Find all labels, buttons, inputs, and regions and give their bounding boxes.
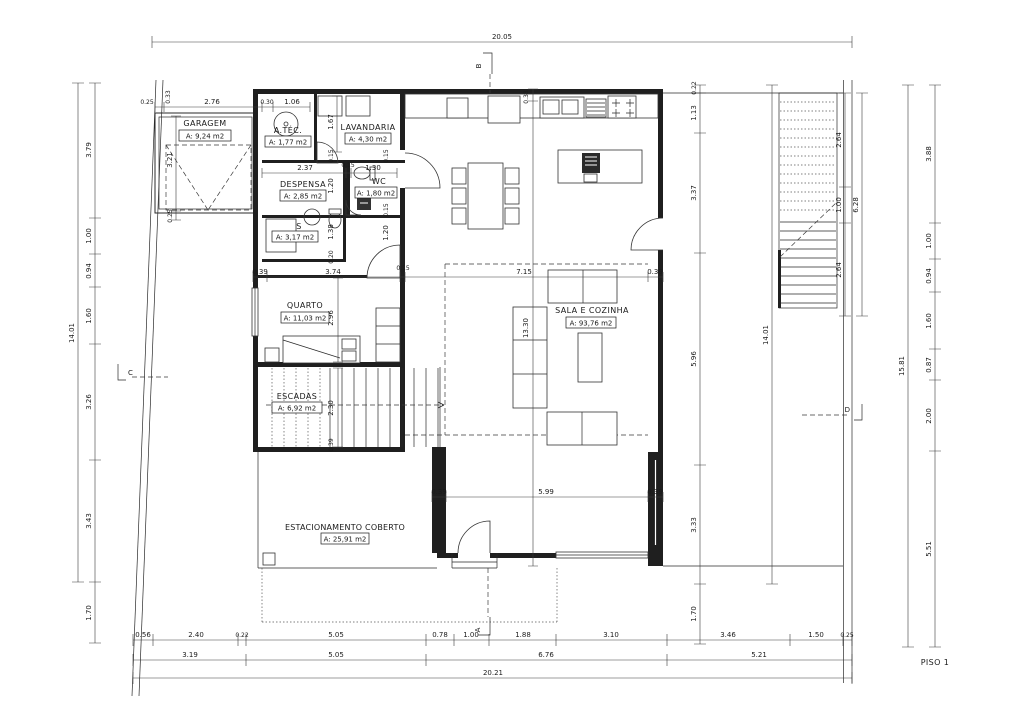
dim-b1-2: 0.22 xyxy=(235,632,249,639)
room-garagem-area: A: 9,24 m2 xyxy=(186,133,224,141)
dim-b1-1: 2.40 xyxy=(188,631,204,639)
dim-b1-0: 0.56 xyxy=(135,631,151,639)
dim-left-3: 1.60 xyxy=(85,308,93,324)
dimension-labels: 20.05 20.21 14.01 3.79 1.00 0.94 1.60 3.… xyxy=(68,33,933,677)
dim-far-3: 1.60 xyxy=(925,313,933,329)
dim-right-4: 3.33 xyxy=(690,517,698,533)
floor-plan-drawing: B A C D xyxy=(0,0,1010,720)
dim-b1-6: 1.88 xyxy=(515,631,531,639)
dim-v-039: 0.39 xyxy=(328,438,335,452)
dim-right-0: 0.22 xyxy=(691,81,698,95)
dim-v-120r: 1.20 xyxy=(382,225,390,241)
dim-mid-0: 0.39 xyxy=(252,268,268,276)
floor-plan-sheet: B A C D xyxy=(0,0,1010,720)
dim-right-3: 5.96 xyxy=(690,351,698,367)
entry-door xyxy=(452,521,497,568)
dim-garage-0: 0.25 xyxy=(140,99,154,106)
room-sala-area: A: 93,76 m2 xyxy=(570,320,613,328)
dim-right-total: 14.01 xyxy=(762,325,770,345)
dim-mid-1: 3.74 xyxy=(325,268,341,276)
dim-top-total: 20.05 xyxy=(492,33,512,41)
dim-left-1: 1.00 xyxy=(85,228,93,244)
room-wc-area: A: 1,80 m2 xyxy=(357,190,395,198)
dim-far-4: 0.87 xyxy=(925,357,933,373)
dim-b1-3: 5.05 xyxy=(328,631,344,639)
dim-b1-8: 3.46 xyxy=(720,631,736,639)
room-escadas-area: A: 6,92 m2 xyxy=(278,405,316,413)
section-marker-b: B xyxy=(475,63,483,68)
dim-extstairs-0: 2.64 xyxy=(835,132,843,148)
drainer-hatch xyxy=(586,99,606,117)
room-atec-area: A: 1,77 m2 xyxy=(269,139,307,147)
dim-left-total: 14.01 xyxy=(68,323,76,343)
dim-b2-2: 6.76 xyxy=(538,651,554,659)
room-sala-name: SALA E COZINHA xyxy=(555,306,629,315)
dim-v-015ra: 0.15 xyxy=(383,149,390,163)
dim-extstairs-total: 6.28 xyxy=(852,197,860,213)
dim-left-5: 3.43 xyxy=(85,513,93,529)
dim-b2-3: 5.21 xyxy=(751,651,767,659)
dim-extstairs-2: 2.64 xyxy=(835,262,843,278)
dim-left-0: 3.79 xyxy=(85,142,93,158)
dim-right-5: 1.70 xyxy=(690,606,698,622)
room-wc-name: WC xyxy=(372,177,386,186)
dim-v-1330: 13.30 xyxy=(522,318,530,338)
dim-left-6: 1.70 xyxy=(85,605,93,621)
room-atec-name: A.TÉC. xyxy=(274,124,302,135)
dim-v-167: 1.67 xyxy=(327,114,335,130)
dim-far-total: 15.81 xyxy=(898,356,906,376)
kitchen-island xyxy=(558,150,642,183)
dim-pantry-0: 2.37 xyxy=(297,164,313,172)
dim-v-015rb: 0.15 xyxy=(383,203,390,217)
dim-mid-4: 0.39 xyxy=(647,268,663,276)
dim-v-138: 1.38 xyxy=(327,224,335,240)
dim-v-230: 2.30 xyxy=(327,400,335,416)
stove-icon xyxy=(608,96,636,118)
dim-pantry-2: 1.30 xyxy=(365,164,381,172)
dim-carport-0: 0.39 xyxy=(431,488,447,496)
dim-left-2: 0.94 xyxy=(85,263,93,279)
dim-b1-10: 0.25 xyxy=(840,632,854,639)
room-escadas-name: ESCADAS xyxy=(277,392,318,401)
dim-b1-4: 0.78 xyxy=(432,631,448,639)
washer-icon xyxy=(318,96,342,116)
dim-mid-3: 7.15 xyxy=(516,268,532,276)
dim-left-4: 3.26 xyxy=(85,394,93,410)
dim-v-020: 0.20 xyxy=(328,250,335,264)
dim-mid-2: 0.15 xyxy=(396,265,410,272)
dim-right-1: 1.13 xyxy=(690,105,698,121)
room-s-name: S xyxy=(296,222,301,231)
dim-v-025: 0.25 xyxy=(167,209,174,223)
dim-pantry-1: 0.15 xyxy=(341,162,355,169)
dining-table xyxy=(468,163,503,229)
dim-garage-1: 2.76 xyxy=(204,98,220,106)
dim-garage-2: 0.30 xyxy=(260,99,274,106)
bedroom-furniture xyxy=(252,288,400,363)
dim-b1-9: 1.50 xyxy=(808,631,824,639)
wardrobe-icon xyxy=(376,308,400,362)
room-estacionamento-area: A: 25,91 m2 xyxy=(324,536,367,544)
dim-carport-1: 5.99 xyxy=(538,488,554,496)
dim-right-2: 3.37 xyxy=(690,185,698,201)
dim-bottom-total: 20.21 xyxy=(483,669,503,677)
dim-b1-5: 1.00 xyxy=(463,631,479,639)
dim-extstairs-1: 1.00 xyxy=(835,197,843,213)
dim-b2-0: 3.19 xyxy=(182,651,198,659)
room-lavandaria-area: A: 4,30 m2 xyxy=(349,136,387,144)
dryer-icon xyxy=(346,96,370,116)
dim-garage-3: 1.06 xyxy=(284,98,300,106)
fixtures xyxy=(266,96,375,252)
room-estacionamento-name: ESTACIONAMENTO COBERTO xyxy=(285,523,405,532)
dining-set xyxy=(452,163,519,229)
room-garagem-name: GARAGEM xyxy=(183,119,226,128)
coffee-table xyxy=(578,333,602,382)
dim-far-6: 5.51 xyxy=(925,541,933,557)
dim-b1-7: 3.10 xyxy=(603,631,619,639)
room-despensa-name: DESPENSA xyxy=(280,180,326,189)
room-quarto-name: QUARTO xyxy=(287,301,323,310)
dim-v-015l: 0.15 xyxy=(328,149,335,163)
room-s-area: A: 3,17 m2 xyxy=(276,234,314,242)
kitchen-counter xyxy=(405,94,658,123)
sheet-title: PISO 1 xyxy=(921,658,950,667)
sofa-set xyxy=(513,270,617,445)
dim-carport-2: 0.39 xyxy=(647,488,663,496)
dim-b2-1: 5.05 xyxy=(328,651,344,659)
room-quarto-area: A: 11,03 m2 xyxy=(284,315,327,323)
dim-v-321: 3.21 xyxy=(166,152,174,168)
exterior-stairs xyxy=(779,93,837,308)
dim-v-033a: 0.33 xyxy=(165,90,172,104)
cooktop-icon xyxy=(582,153,600,173)
dim-far-0: 3.88 xyxy=(925,146,933,162)
carport-outline xyxy=(258,452,557,622)
dim-v-120l: 1.20 xyxy=(327,178,335,194)
dim-far-5: 2.00 xyxy=(925,408,933,424)
room-despensa-area: A: 2,85 m2 xyxy=(284,193,322,201)
dim-far-2: 0.94 xyxy=(925,268,933,284)
section-marker-c: C xyxy=(128,369,133,377)
room-lavandaria-name: LAVANDARIA xyxy=(341,123,396,132)
dim-far-1: 1.00 xyxy=(925,233,933,249)
section-marker-d: D xyxy=(845,406,850,414)
dim-v-033b: 0.33 xyxy=(523,90,530,104)
